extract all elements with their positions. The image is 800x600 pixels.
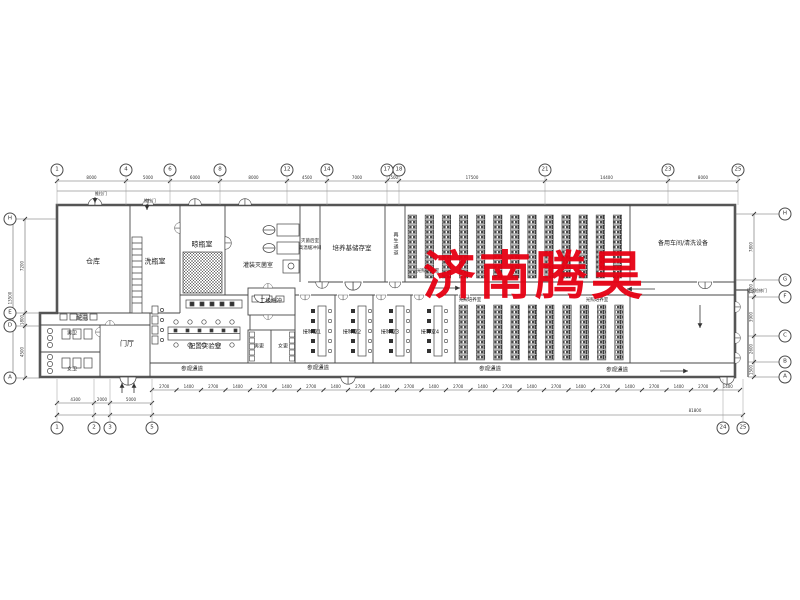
bench-unit bbox=[427, 309, 431, 313]
rack-column bbox=[494, 305, 503, 360]
door-symbol bbox=[345, 282, 361, 290]
bench-unit bbox=[351, 329, 355, 333]
door-symbol bbox=[389, 282, 401, 288]
stool bbox=[444, 349, 447, 352]
rack-column bbox=[425, 215, 434, 278]
bench-unit bbox=[311, 309, 315, 313]
bench-unit bbox=[427, 339, 431, 343]
bench-unit bbox=[311, 319, 315, 323]
stool bbox=[368, 349, 371, 352]
rack-column bbox=[546, 305, 555, 360]
locker bbox=[250, 344, 255, 349]
door-symbol bbox=[143, 200, 154, 205]
rack-column bbox=[615, 305, 624, 360]
ladder-rack bbox=[132, 237, 142, 313]
autoclave-units bbox=[263, 224, 299, 273]
door-symbol bbox=[459, 295, 469, 300]
bench-unit bbox=[351, 309, 355, 313]
door-symbol bbox=[735, 333, 740, 344]
door-symbol bbox=[300, 295, 310, 300]
door-symbol bbox=[106, 321, 115, 326]
bench-unit bbox=[389, 319, 393, 323]
lab-table bbox=[168, 320, 240, 347]
rack-column bbox=[511, 305, 520, 360]
stool bbox=[368, 309, 371, 312]
door-symbol bbox=[414, 295, 424, 300]
door-symbol bbox=[189, 199, 202, 205]
locker bbox=[250, 350, 255, 355]
rack-column bbox=[459, 215, 468, 278]
clean-bench bbox=[434, 306, 442, 356]
door-symbol bbox=[316, 282, 329, 288]
bench-unit bbox=[351, 349, 355, 353]
rack-column bbox=[528, 215, 537, 278]
stool bbox=[328, 339, 331, 342]
door-symbol bbox=[735, 353, 740, 364]
stool bbox=[444, 309, 447, 312]
door-symbol bbox=[698, 282, 712, 289]
door-symbol bbox=[225, 237, 231, 250]
locker bbox=[250, 356, 255, 361]
bench-unit bbox=[427, 319, 431, 323]
door-symbol bbox=[376, 295, 386, 300]
bench-unit bbox=[427, 329, 431, 333]
rack-column bbox=[476, 215, 485, 278]
locker bbox=[290, 350, 295, 355]
door-symbol bbox=[239, 199, 252, 205]
stool bbox=[406, 329, 409, 332]
stool bbox=[406, 349, 409, 352]
bench-unit bbox=[351, 319, 355, 323]
locker bbox=[290, 344, 295, 349]
door-symbol bbox=[264, 284, 273, 289]
stool bbox=[406, 309, 409, 312]
door-symbol bbox=[338, 295, 348, 300]
stool bbox=[444, 339, 447, 342]
door-symbol bbox=[96, 328, 101, 337]
stool bbox=[368, 329, 371, 332]
rack-column bbox=[562, 215, 571, 278]
clean-bench bbox=[318, 306, 326, 356]
door-symbol bbox=[175, 223, 180, 234]
stool bbox=[368, 339, 371, 342]
stool bbox=[368, 319, 371, 322]
stool bbox=[444, 329, 447, 332]
rack-column bbox=[563, 305, 572, 360]
stool bbox=[328, 309, 331, 312]
bench-unit bbox=[389, 339, 393, 343]
door-symbol bbox=[264, 315, 273, 320]
rack-column bbox=[476, 305, 485, 360]
stool bbox=[444, 319, 447, 322]
clean-bench bbox=[396, 306, 404, 356]
door-symbol bbox=[720, 377, 734, 384]
stool bbox=[406, 339, 409, 342]
grid-extension-lines bbox=[57, 176, 743, 421]
rack-column bbox=[511, 215, 519, 278]
light-culture-racks-lower bbox=[459, 305, 623, 360]
rack-column bbox=[579, 215, 588, 278]
bench-unit bbox=[389, 349, 393, 353]
door-symbol bbox=[341, 377, 355, 384]
locker bbox=[290, 332, 295, 337]
locker bbox=[290, 338, 295, 343]
rack-column bbox=[442, 215, 451, 278]
rack-column bbox=[613, 215, 622, 278]
stool bbox=[328, 329, 331, 332]
light-culture-racks-upper bbox=[408, 215, 622, 278]
outer-walls bbox=[40, 205, 748, 377]
bench-unit bbox=[389, 309, 393, 313]
rack-column bbox=[408, 215, 417, 278]
rack-column bbox=[545, 215, 554, 278]
locker bbox=[250, 338, 255, 343]
clean-bench bbox=[358, 306, 366, 356]
stool bbox=[328, 349, 331, 352]
interior-walls bbox=[40, 205, 735, 377]
bench-unit bbox=[311, 339, 315, 343]
locker bbox=[250, 332, 255, 337]
door-symbol bbox=[735, 302, 740, 313]
toilet-fixtures bbox=[47, 328, 92, 373]
drying-hatch-area bbox=[183, 252, 222, 293]
floor-plan-sheet: 仓库 洗瓶室 晾瓶室 灌装灭菌室 灭菌后室 高温缓冲间 培养基储存室 再生通道 … bbox=[0, 0, 800, 600]
locker bbox=[290, 356, 295, 361]
bench-unit bbox=[389, 329, 393, 333]
rack-column bbox=[596, 215, 605, 278]
rack-column bbox=[459, 305, 468, 360]
bench-unit bbox=[311, 329, 315, 333]
rack-column bbox=[494, 215, 503, 278]
rack-column bbox=[528, 305, 537, 360]
floor-plan-drawing bbox=[0, 0, 800, 600]
bench-unit bbox=[351, 339, 355, 343]
rack-column bbox=[597, 305, 606, 360]
bench-unit bbox=[311, 349, 315, 353]
power-distribution-cabinets bbox=[60, 314, 97, 320]
rack-column bbox=[580, 305, 589, 360]
bench-unit bbox=[427, 349, 431, 353]
stool bbox=[328, 319, 331, 322]
inoculation-benches bbox=[311, 306, 448, 356]
stool bbox=[406, 319, 409, 322]
